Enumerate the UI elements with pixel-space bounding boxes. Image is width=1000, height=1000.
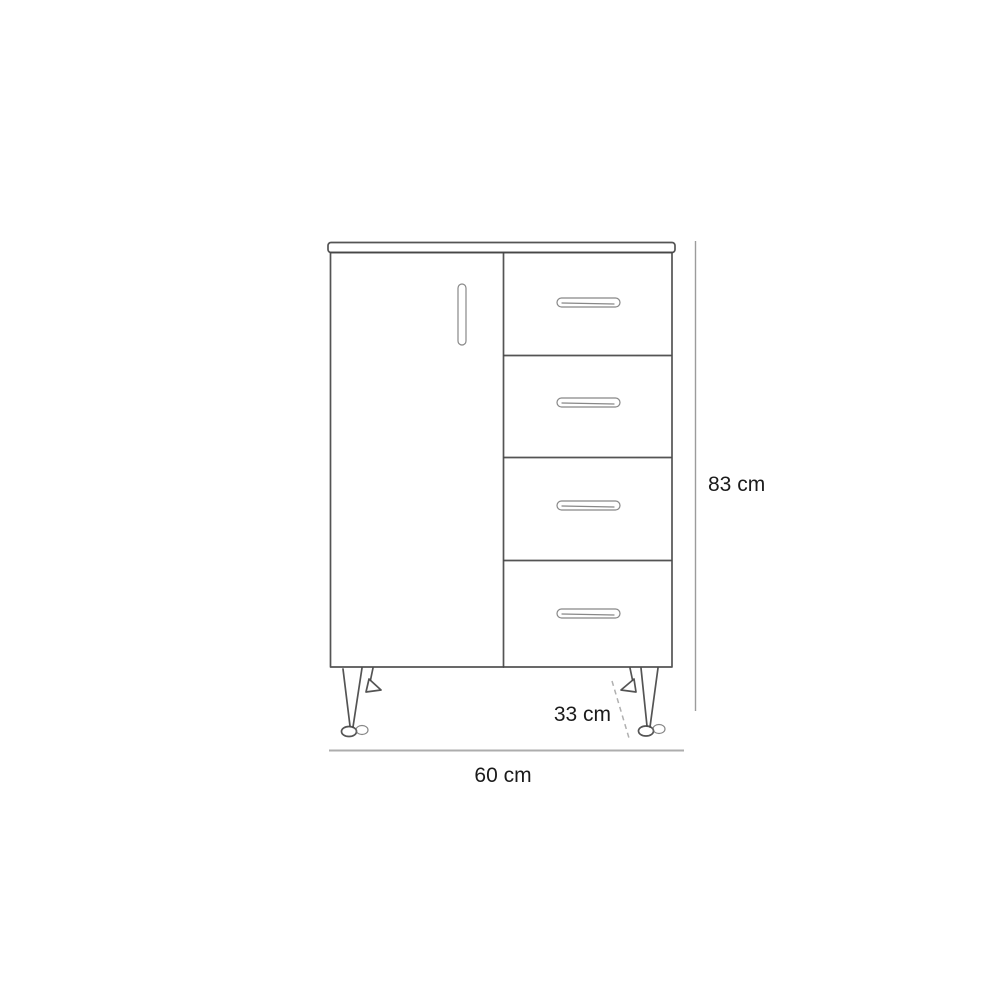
front-right-foot [639,726,654,736]
depth-dimension-label: 33 cm [554,703,611,726]
width-dimension-label: 60 cm [474,764,531,787]
drawer-handle-1-shade [562,303,614,304]
door-handle [458,284,466,345]
rear-left-leg-bracket [366,679,381,692]
cabinet-top-panel [328,243,675,253]
rear-right-foot [653,725,665,734]
cabinet [328,243,675,668]
drawer-handle-3-shade [562,506,614,507]
drawer-handle-4-shade [562,614,614,615]
rear-right-leg [621,668,636,692]
cabinet-body [331,253,673,668]
height-dimension-label: 83 cm [708,473,765,496]
drawing-page: 83 cm 60 cm 33 cm [0,0,1000,1000]
front-left-leg [342,668,369,737]
dimension-annotations: 83 cm 60 cm 33 cm [329,241,765,787]
front-right-leg [639,668,666,736]
front-left-foot [342,727,357,737]
cabinet-dimension-diagram: 83 cm 60 cm 33 cm [0,0,1000,1000]
cabinet-legs [342,668,666,737]
drawer-handle-2-shade [562,403,614,404]
rear-left-leg [366,668,381,692]
rear-right-leg-bracket [621,679,636,692]
rear-left-foot [356,726,368,735]
